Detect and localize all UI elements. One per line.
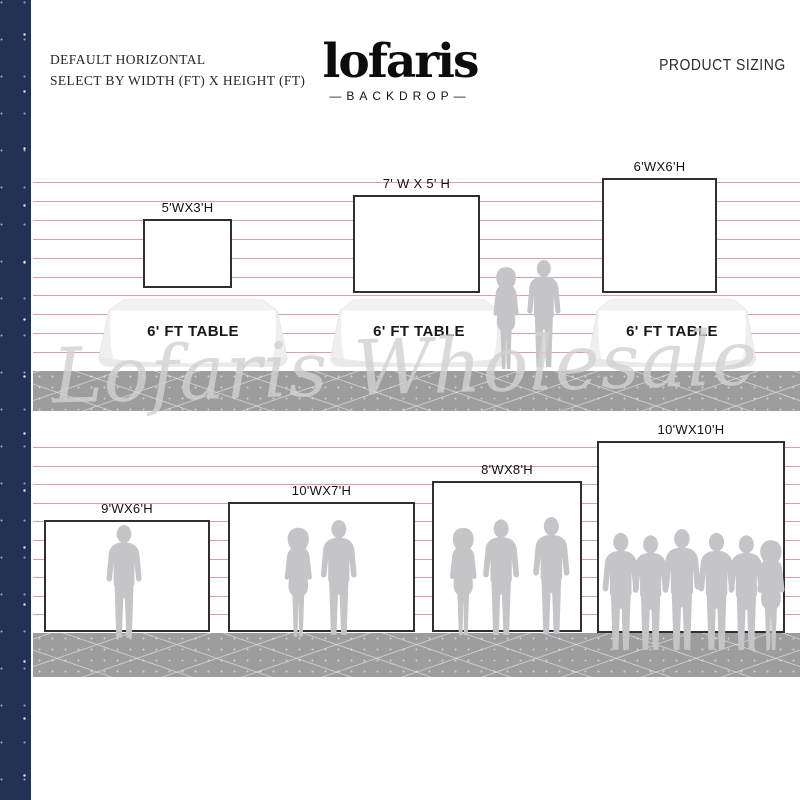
backdrop-size-label: 8'WX8'H bbox=[481, 462, 533, 477]
wall-line bbox=[33, 295, 800, 296]
backdrop-size-label: 5'WX3'H bbox=[162, 200, 214, 215]
banquet-table: 6' FT TABLE bbox=[94, 297, 292, 373]
backdrop-rect bbox=[602, 178, 717, 293]
ruler-strip bbox=[0, 0, 31, 800]
backdrop-size-label: 6'WX6'H bbox=[634, 159, 686, 174]
tagline-line1: DEFAULT HORIZONTAL bbox=[50, 50, 305, 71]
backdrop-size-label: 10'WX7'H bbox=[292, 483, 351, 498]
backdrop-size-label: 10'WX10'H bbox=[658, 422, 725, 437]
header-tagline: DEFAULT HORIZONTAL SELECT BY WIDTH (FT) … bbox=[50, 50, 305, 92]
table-label: 6' FT TABLE bbox=[326, 323, 512, 340]
tagline-line2: SELECT BY WIDTH (FT) X HEIGHT (FT) bbox=[50, 71, 305, 92]
backdrop-rect bbox=[353, 195, 480, 293]
silhouette-couple bbox=[280, 519, 359, 639]
silhouette-group6 bbox=[600, 528, 789, 654]
brand-logo: lofaris bbox=[285, 34, 515, 89]
backdrop-size-label: 7' W X 5' H bbox=[383, 176, 451, 191]
silhouette-couple bbox=[489, 259, 563, 371]
floor-1 bbox=[33, 371, 800, 411]
banquet-table: 6' FT TABLE bbox=[584, 297, 760, 373]
table-label: 6' FT TABLE bbox=[94, 323, 292, 340]
page-title: PRODUCT SIZING bbox=[659, 57, 786, 75]
brand-logo-subtext: —BACKDROP— bbox=[285, 89, 515, 103]
backdrop-rect bbox=[143, 219, 232, 288]
table-label: 6' FT TABLE bbox=[584, 323, 760, 340]
sizing-scene: 10'9'8'7'6'5'4'3'2'1'5'WX3'H7' W X 5' H6… bbox=[0, 0, 800, 800]
silhouette-man bbox=[104, 524, 144, 642]
backdrop-size-label: 9'WX6'H bbox=[101, 501, 153, 516]
banquet-table: 6' FT TABLE bbox=[326, 297, 512, 373]
silhouette-trio bbox=[444, 516, 572, 638]
